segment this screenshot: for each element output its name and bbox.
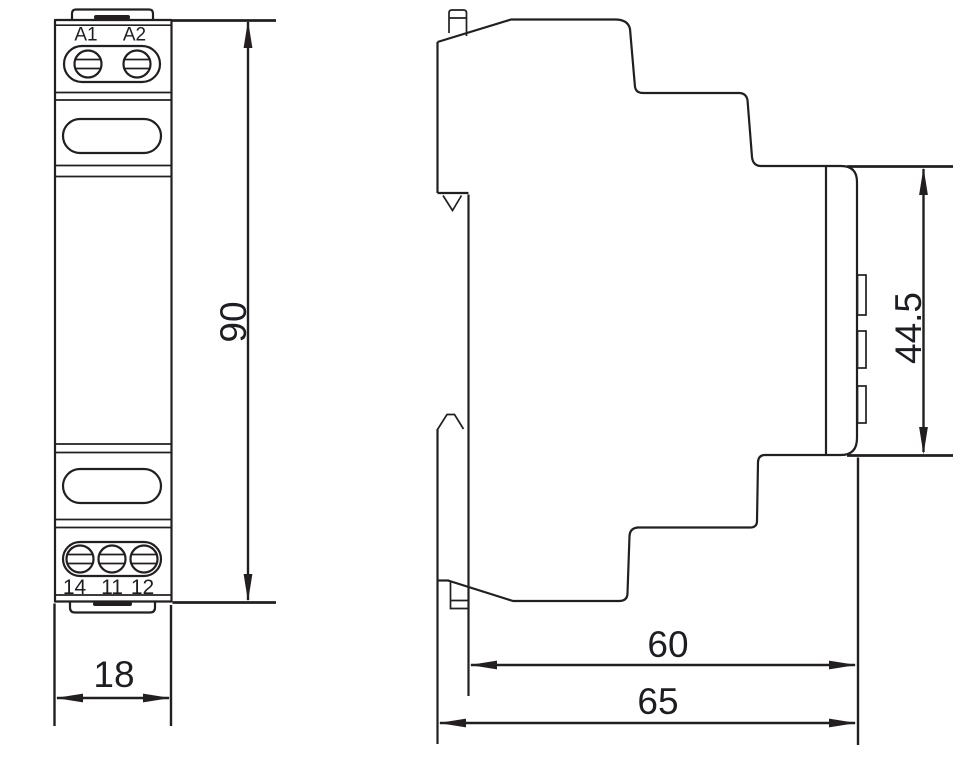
terminal-label-12: 12 xyxy=(131,576,154,599)
front-label-window-lower xyxy=(63,469,161,503)
side-rail-claw-top xyxy=(443,196,462,211)
technical-drawing-page: A1 A2 14 11 12 xyxy=(0,0,976,772)
dimension-90: 90 xyxy=(173,21,277,603)
dim-65-arrow-right xyxy=(829,719,857,728)
relay-module-dimension-drawing: A1 A2 14 11 12 xyxy=(0,0,976,772)
dim-44-5-label: 44.5 xyxy=(888,292,929,364)
screw-terminal-a1 xyxy=(75,51,102,78)
terminal-label-a1: A1 xyxy=(74,25,97,46)
screw-terminal-11 xyxy=(99,546,126,573)
front-bottom-tab-slot xyxy=(93,602,132,607)
dim-44-5-arrow-down xyxy=(919,427,928,455)
side-top-tab xyxy=(449,10,467,36)
dim-18-arrow-right xyxy=(143,694,171,703)
screw-terminal-12 xyxy=(131,546,158,573)
side-rail-claw-bottom xyxy=(438,415,464,430)
dim-90-label: 90 xyxy=(213,301,254,342)
terminal-slot-oval-top xyxy=(64,46,160,82)
dim-90-arrow-up xyxy=(244,21,253,49)
front-label-window-upper xyxy=(63,119,161,153)
dim-65-label: 65 xyxy=(637,681,678,722)
dim-18-arrow-left xyxy=(56,694,84,703)
dim-18-label: 18 xyxy=(93,654,134,695)
front-section-dividers xyxy=(56,93,171,528)
terminal-label-14: 14 xyxy=(63,576,87,599)
front-view: A1 A2 14 11 12 xyxy=(55,10,172,613)
dim-60-arrow-left xyxy=(470,661,498,670)
front-body xyxy=(55,20,172,602)
dimension-44-5: 44.5 xyxy=(847,167,953,456)
front-top-terminal-block: A1 A2 xyxy=(64,25,160,83)
dim-44-5-arrow-up xyxy=(919,168,928,196)
dimension-60: 60 xyxy=(470,624,857,669)
terminal-slot-oval-bottom xyxy=(63,542,161,576)
dim-65-arrow-left xyxy=(439,719,467,728)
dimension-65: 65 xyxy=(439,458,859,746)
screw-terminal-14 xyxy=(67,546,94,573)
front-top-tab-slot xyxy=(94,15,130,20)
dim-90-arrow-down xyxy=(244,574,253,602)
terminal-label-11: 11 xyxy=(101,576,123,599)
side-body-profile xyxy=(438,20,858,602)
front-bottom-terminal-block: 14 11 12 xyxy=(63,542,161,599)
side-face-bumps xyxy=(858,275,867,423)
dim-60-arrow-right xyxy=(829,661,857,670)
dimension-18: 18 xyxy=(55,604,172,727)
dim-60-label: 60 xyxy=(647,624,688,665)
screw-terminal-a2 xyxy=(124,51,151,78)
terminal-label-a2: A2 xyxy=(123,25,146,46)
